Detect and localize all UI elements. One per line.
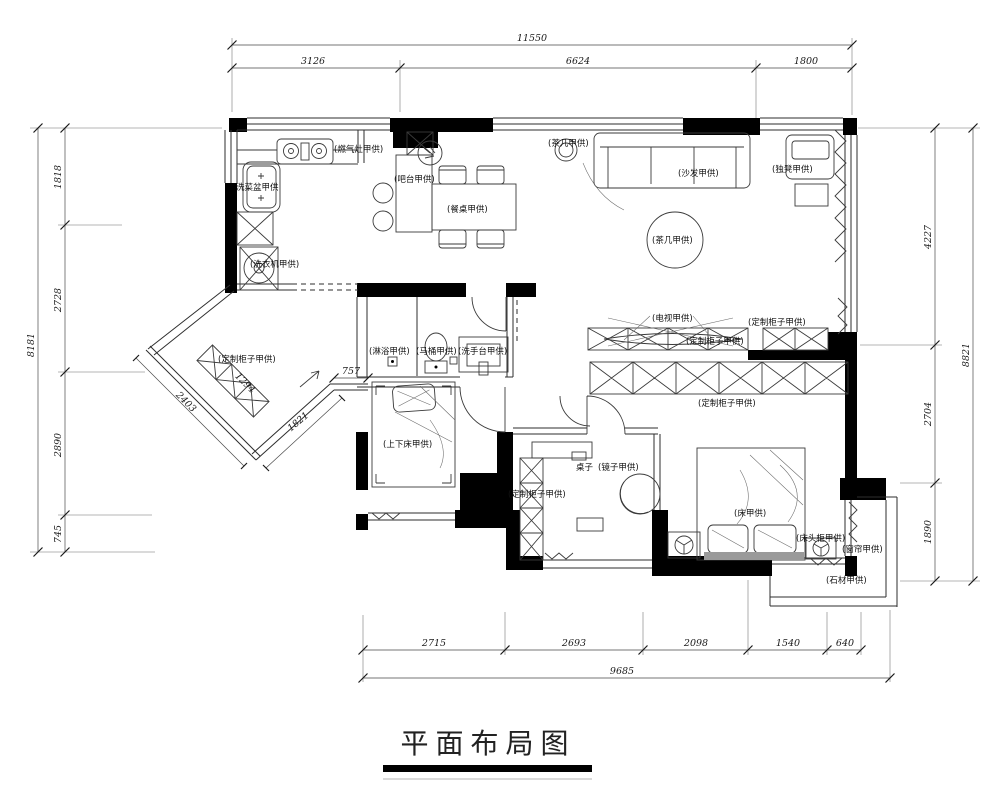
cabinet-top-right <box>763 328 828 350</box>
desk <box>532 442 592 460</box>
label-bedside-table: (床头柜甲供) <box>796 533 845 544</box>
bar-stool <box>373 211 393 231</box>
label-gas-stove: (燃气灶甲供) <box>334 144 383 155</box>
dim-left-seg-3: 2890 <box>53 433 64 458</box>
dining-chair <box>477 166 504 184</box>
side-table <box>795 184 828 206</box>
drawing-title: 平面布局图 <box>400 727 575 760</box>
dim-top-total: 11550 <box>517 33 547 44</box>
label-washing-machine: (洗衣机甲供) <box>250 259 299 270</box>
dim-bottom-seg-3: 2098 <box>683 638 708 649</box>
bed <box>697 448 805 560</box>
bedside-table-left <box>668 532 700 558</box>
wardrobe-strip <box>520 458 543 560</box>
dim-entry-outer: 2403 <box>173 389 199 415</box>
title-block: 平面布局图 <box>383 727 592 779</box>
curtain-hatch-bedroom <box>849 502 857 542</box>
curtain-hatch-living <box>835 130 846 262</box>
dim-top-seg-1: 3126 <box>301 56 325 67</box>
living-room <box>555 133 834 268</box>
dim-right-seg-1: 4227 <box>923 224 934 250</box>
dimension-left: 8181 1818 2728 2890 745 <box>26 124 222 557</box>
label-cabinet-entry: (定制柜子甲供) <box>218 354 276 365</box>
dim-bottom-seg-4: 1540 <box>776 638 800 649</box>
label-sofa: (沙发甲供) <box>678 168 719 179</box>
label-stone: (石材甲供) <box>826 575 867 586</box>
counter-cabinet <box>237 212 273 245</box>
label-tv: (电视甲供) <box>652 313 693 324</box>
entry-arrow <box>300 371 319 387</box>
label-mirror: (镜子甲供) <box>598 462 639 473</box>
dim-bottom-seg-2: 2693 <box>561 638 586 649</box>
dim-entry-cabinet: 1294 <box>232 371 257 396</box>
tea-table-small <box>555 139 624 210</box>
bar-stool <box>373 183 393 203</box>
bed-bench <box>704 552 804 560</box>
dim-bottom-total: 9685 <box>610 666 634 677</box>
label-bed: (床甲供) <box>734 508 766 519</box>
title-underline <box>383 765 592 772</box>
label-curtain: (窗帘甲供) <box>842 544 883 555</box>
dim-left-seg-4: 745 <box>53 525 64 543</box>
label-cabinet-middle: (定制柜子甲供) <box>508 489 566 500</box>
bunk-bed <box>372 382 455 487</box>
dimension-top: 11550 3126 6624 1800 <box>228 33 857 118</box>
dim-right-seg-2: 2704 <box>923 402 934 427</box>
bar-counter <box>373 155 432 232</box>
dim-entry-offset: 757 <box>342 366 361 377</box>
label-cabinet-tv-row: (定制柜子甲供) <box>686 336 744 347</box>
bunk-room <box>372 382 455 487</box>
label-tea-table: (茶几甲供) <box>652 235 693 246</box>
dimension-right: 8821 4227 2704 1890 <box>858 124 980 586</box>
dim-bottom-seg-5: 640 <box>836 638 854 649</box>
label-stool: (独凳甲供) <box>772 164 813 175</box>
label-cabinet-top-right: (定制柜子甲供) <box>748 317 806 328</box>
label-cabinet-long: (定制柜子甲供) <box>698 398 756 409</box>
dining-area <box>373 155 516 248</box>
dim-bottom-seg-1: 2715 <box>421 638 446 649</box>
label-dining-table: (餐桌甲供) <box>447 204 488 215</box>
label-tea-table-small: (茶几甲供) <box>548 138 589 149</box>
dining-chair <box>439 166 466 184</box>
label-bar-counter: (吧台甲供) <box>394 174 435 185</box>
label-bunk-bed: (上下床甲供) <box>383 439 432 450</box>
long-cabinet <box>590 362 848 394</box>
label-shower: (淋浴甲供) <box>369 346 410 357</box>
dimension-bottom: 2715 2693 2098 1540 640 9685 <box>359 580 895 683</box>
middle-room <box>520 442 660 560</box>
dining-chair <box>477 230 504 248</box>
dim-left-seg-1: 1818 <box>53 165 64 189</box>
label-toilet: (马桶甲供) <box>416 346 457 357</box>
label-desk: 桌子 <box>576 462 594 473</box>
dining-chair <box>439 230 466 248</box>
dim-right-seg-3: 1890 <box>923 520 934 544</box>
dim-top-seg-2: 6624 <box>566 56 590 67</box>
dim-top-seg-3: 1800 <box>794 56 818 67</box>
label-sink: 洗菜盆甲供 <box>236 182 279 193</box>
shower <box>388 357 397 366</box>
floor-plan-page: 11550 3126 6624 1800 8181 1818 2728 2890… <box>0 0 1000 791</box>
floor-plan-drawing: 11550 3126 6624 1800 8181 1818 2728 2890… <box>0 0 1000 791</box>
sofa <box>594 133 750 188</box>
dim-left-seg-2: 2728 <box>53 288 64 313</box>
label-wash-basin: (洗手台甲供) <box>458 346 507 357</box>
dim-left-total: 8181 <box>26 333 37 357</box>
dim-right-total: 8821 <box>961 343 972 367</box>
gas-stove <box>277 139 333 164</box>
low-table <box>577 518 603 531</box>
